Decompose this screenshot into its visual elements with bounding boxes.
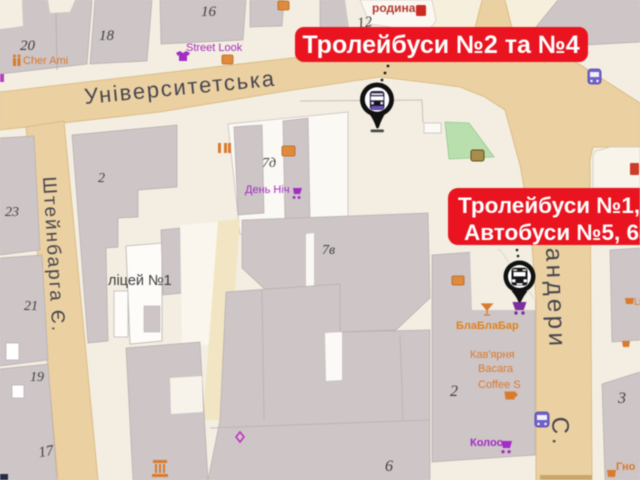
svg-text:2: 2 [450,383,458,400]
svg-text:БлаБлаБар: БлаБлаБар [456,320,519,332]
svg-text:Тролейбуси №2 та №4: Тролейбуси №2 та №4 [302,31,579,59]
svg-text:День Ніч: День Ніч [245,184,290,196]
svg-text:Coffee S: Coffee S [478,379,521,391]
svg-text:Колос: Колос [470,437,503,449]
svg-text:Автобуси №5, 6а: Автобуси №5, 6а [464,220,640,245]
svg-text:Cher Ami: Cher Ami [23,55,68,67]
svg-text:Гно: Гно [616,461,636,473]
svg-text:7в: 7в [322,243,335,258]
svg-text:20: 20 [20,38,36,54]
svg-text:Васага: Васага [478,363,514,375]
svg-text:родина: родина [372,1,416,15]
svg-text:6: 6 [385,458,393,475]
svg-text:18: 18 [99,28,115,44]
svg-text:Тролейбуси №1,: Тролейбуси №1, [458,193,640,218]
svg-text:ліцей №1: ліцей №1 [108,273,172,289]
svg-text:С.: С. [546,416,574,448]
svg-text:Street Look: Street Look [186,42,243,54]
svg-text:21: 21 [24,299,38,314]
svg-text:7д: 7д [262,156,276,171]
svg-text:Ц: Ц [634,297,640,308]
svg-text:Кав'ярня: Кав'ярня [470,349,515,361]
svg-text:андери: андери [540,247,571,350]
svg-text:19: 19 [30,370,44,385]
svg-text:2: 2 [98,171,105,186]
svg-text:23: 23 [5,205,19,220]
svg-text:3: 3 [617,390,626,407]
svg-text:16: 16 [201,4,217,20]
